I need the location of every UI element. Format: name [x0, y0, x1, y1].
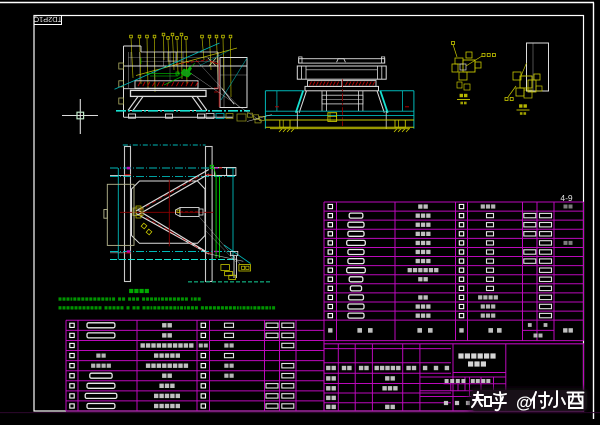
svg-text:TD2P1Q: TD2P1Q	[33, 15, 62, 24]
svg-text:@: @	[516, 393, 533, 412]
svg-text:4-9: 4-9	[560, 193, 573, 203]
